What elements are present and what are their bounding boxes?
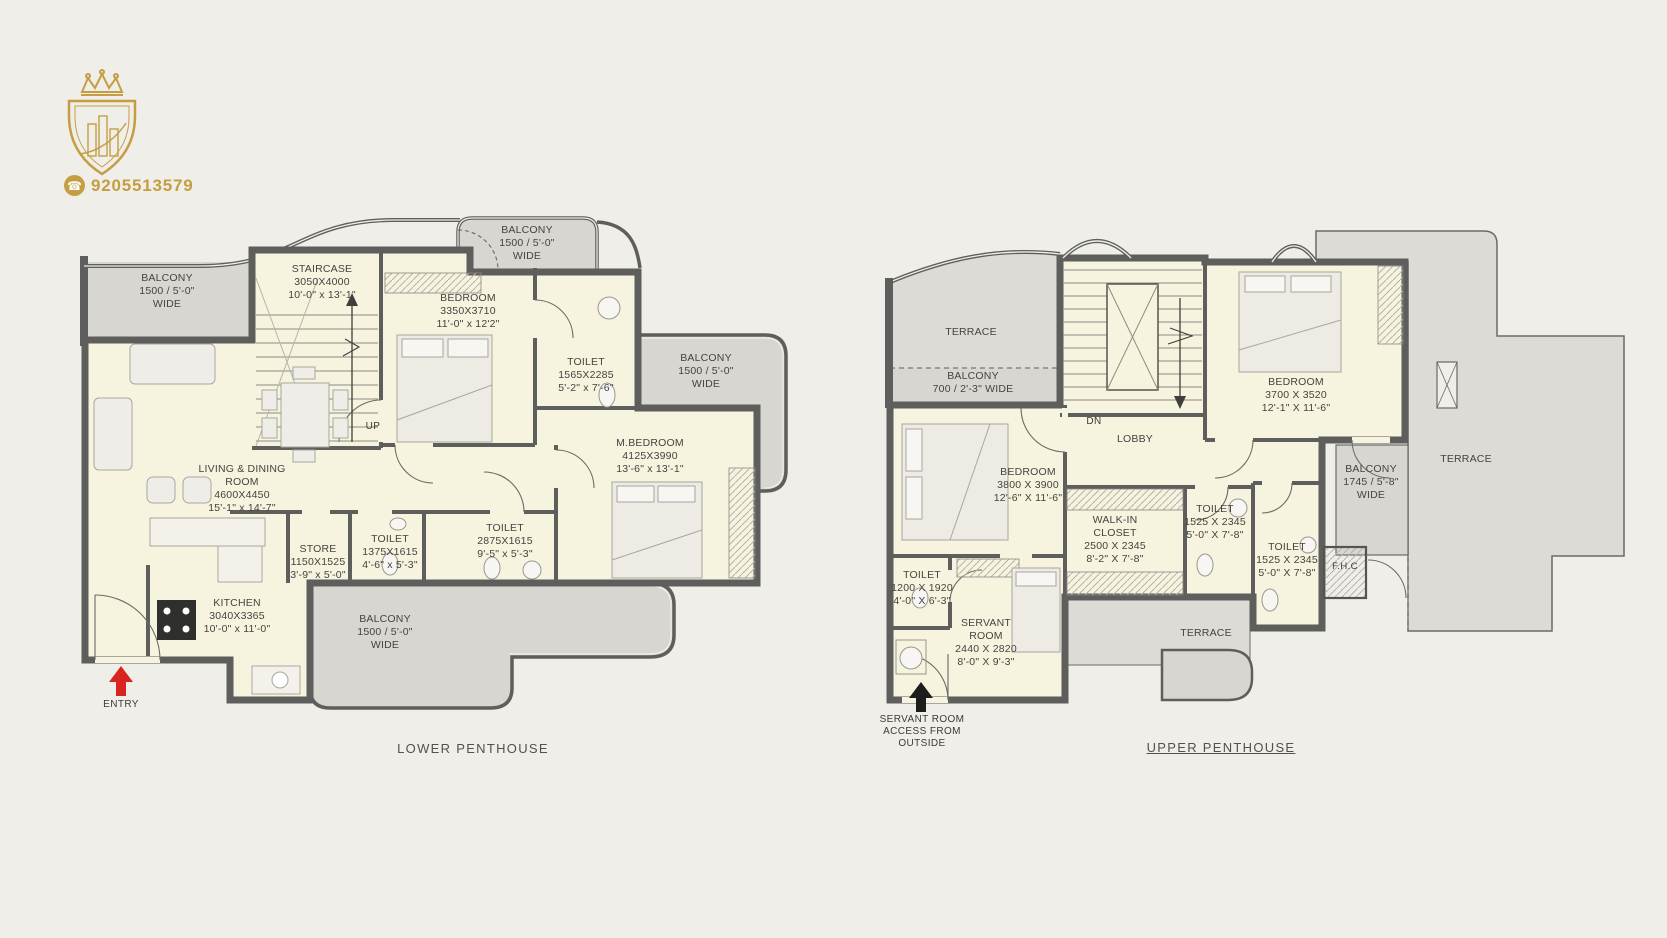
up-annotation: UP bbox=[366, 421, 381, 433]
room-line: 1525 X 2345 bbox=[1256, 554, 1318, 567]
room-label-upper-servant-room: SERVANT ROOM 2440 X 2820 8'-0" X 9'-3" bbox=[955, 617, 1017, 669]
room-line: 5'-2" x 7'-6" bbox=[558, 382, 614, 395]
room-line: 1375X1615 bbox=[362, 546, 418, 559]
phone-icon: ☎ bbox=[64, 175, 85, 196]
lower-penthouse-title: LOWER PENTHOUSE bbox=[397, 741, 549, 757]
room-label-upper-lobby: LOBBY bbox=[1117, 433, 1153, 446]
room-label-upper-toilet-3: TOILET 1200 X 1920 4'-0" X 6'-3" bbox=[891, 569, 953, 608]
room-line: 4600X4450 bbox=[198, 489, 285, 502]
room-line: WIDE bbox=[678, 378, 733, 391]
room-line: TOILET bbox=[558, 356, 614, 369]
phone-number: 9205513579 bbox=[91, 176, 194, 196]
room-line: 2440 X 2820 bbox=[955, 643, 1017, 656]
room-line: 1150X1525 bbox=[290, 556, 346, 569]
room-line: TOILET bbox=[1184, 503, 1246, 516]
room-line: STORE bbox=[290, 543, 346, 556]
room-line: BEDROOM bbox=[436, 292, 499, 305]
room-label-lower-balcony-bottom: BALCONY 1500 / 5'-0" WIDE bbox=[357, 613, 412, 652]
room-line: WIDE bbox=[139, 298, 194, 311]
room-line: 5'-0" X 7'-8" bbox=[1184, 529, 1246, 542]
room-label-lower-master-bedroom: M.BEDROOM 4125X3990 13'-6" x 13'-1" bbox=[616, 437, 684, 476]
room-line: 3050X4000 bbox=[288, 276, 356, 289]
room-line: BEDROOM bbox=[1262, 376, 1331, 389]
floorplan-sheet: ☎ 9205513579 BALCONY 1500 / 5'-0" WIDE S… bbox=[0, 0, 1667, 938]
room-label-upper-walk-in-closet: WALK-IN CLOSET 2500 X 2345 8'-2" X 7'-8" bbox=[1084, 514, 1146, 566]
room-line: TOILET bbox=[891, 569, 953, 582]
room-line: 4125X3990 bbox=[616, 450, 684, 463]
room-label-upper-toilet-2: TOILET 1525 X 2345 5'-0" X 7'-8" bbox=[1256, 541, 1318, 580]
room-line: 4'-6" x 5'-3" bbox=[362, 559, 418, 572]
room-line: 10'-0" x 11'-0" bbox=[204, 623, 271, 636]
room-label-upper-terrace-right: TERRACE bbox=[1440, 453, 1492, 466]
room-line: LOBBY bbox=[1117, 433, 1153, 446]
room-line: WALK-IN bbox=[1084, 514, 1146, 527]
note-line: OUTSIDE bbox=[880, 738, 965, 750]
room-line: 8'-2" X 7'-8" bbox=[1084, 553, 1146, 566]
room-line: TOILET bbox=[1256, 541, 1318, 554]
room-label-lower-living-dining: LIVING & DINING ROOM 4600X4450 15'-1" x … bbox=[198, 463, 285, 515]
note-line: ACCESS FROM bbox=[880, 726, 965, 738]
room-line: 1500 / 5'-0" bbox=[357, 626, 412, 639]
room-line: 700 / 2'-3" WIDE bbox=[933, 383, 1014, 396]
room-line: 3040X3365 bbox=[204, 610, 271, 623]
room-line: 8'-0" X 9'-3" bbox=[955, 656, 1017, 669]
phone-number-row: ☎ 9205513579 bbox=[64, 175, 194, 196]
room-line: BALCONY bbox=[139, 272, 194, 285]
room-label-lower-bedroom: BEDROOM 3350X3710 11'-0" x 12'2" bbox=[436, 292, 499, 331]
room-line: 3350X3710 bbox=[436, 305, 499, 318]
room-line: TOILET bbox=[477, 522, 533, 535]
room-line: TERRACE bbox=[945, 326, 997, 339]
room-line: 1565X2285 bbox=[558, 369, 614, 382]
room-line: M.BEDROOM bbox=[616, 437, 684, 450]
room-label-upper-balcony-right: BALCONY 1745 / 5'-8" WIDE bbox=[1343, 463, 1398, 502]
room-line: 1500 / 5'-0" bbox=[499, 237, 554, 250]
entry-annotation: ENTRY bbox=[103, 699, 139, 711]
room-label-upper-terrace-bottom: TERRACE bbox=[1180, 627, 1232, 640]
dn-annotation: DN bbox=[1086, 416, 1101, 428]
servant-access-note: SERVANT ROOM ACCESS FROM OUTSIDE bbox=[880, 714, 965, 750]
room-label-upper-toilet-1: TOILET 1525 X 2345 5'-0" X 7'-8" bbox=[1184, 503, 1246, 542]
room-line: ROOM bbox=[955, 630, 1017, 643]
room-line: 1745 / 5'-8" bbox=[1343, 476, 1398, 489]
room-line: 1525 X 2345 bbox=[1184, 516, 1246, 529]
room-line: TOILET bbox=[362, 533, 418, 546]
room-line: 5'-0" X 7'-8" bbox=[1256, 567, 1318, 580]
room-label-lower-toilet-2: TOILET 1375X1615 4'-6" x 5'-3" bbox=[362, 533, 418, 572]
room-line: 1500 / 5'-0" bbox=[139, 285, 194, 298]
room-line: 12'-6" X 11'-6" bbox=[994, 492, 1063, 505]
room-label-upper-bedroom-left: BEDROOM 3800 X 3900 12'-6" X 11'-6" bbox=[994, 466, 1063, 505]
room-line: BEDROOM bbox=[994, 466, 1063, 479]
room-line: 9'-5" x 5'-3" bbox=[477, 548, 533, 561]
room-label-upper-terrace-top-left: TERRACE bbox=[945, 326, 997, 339]
room-line: 1500 / 5'-0" bbox=[678, 365, 733, 378]
room-line: 2875X1615 bbox=[477, 535, 533, 548]
room-line: TERRACE bbox=[1440, 453, 1492, 466]
room-line: BALCONY bbox=[933, 370, 1014, 383]
room-label-lower-balcony-top-left: BALCONY 1500 / 5'-0" WIDE bbox=[139, 272, 194, 311]
room-line: 3'-9" x 5'-0" bbox=[290, 569, 346, 582]
room-line: STAIRCASE bbox=[288, 263, 356, 276]
room-line: 4'-0" X 6'-3" bbox=[891, 595, 953, 608]
room-line: CLOSET bbox=[1084, 527, 1146, 540]
room-line: WIDE bbox=[499, 250, 554, 263]
brand-logo bbox=[55, 68, 151, 180]
room-line: 11'-0" x 12'2" bbox=[436, 318, 499, 331]
room-line: 1200 X 1920 bbox=[891, 582, 953, 595]
upper-penthouse-title: UPPER PENTHOUSE bbox=[1147, 740, 1296, 756]
room-line: LIVING & DINING bbox=[198, 463, 285, 476]
room-line: KITCHEN bbox=[204, 597, 271, 610]
room-line: WIDE bbox=[357, 639, 412, 652]
note-line: SERVANT ROOM bbox=[880, 714, 965, 726]
room-line: 2500 X 2345 bbox=[1084, 540, 1146, 553]
room-line: WIDE bbox=[1343, 489, 1398, 502]
room-label-lower-balcony-top: BALCONY 1500 / 5'-0" WIDE bbox=[499, 224, 554, 263]
room-label-upper-bedroom-right: BEDROOM 3700 X 3520 12'-1" X 11'-6" bbox=[1262, 376, 1331, 415]
room-label-lower-store: STORE 1150X1525 3'-9" x 5'-0" bbox=[290, 543, 346, 582]
room-line: SERVANT bbox=[955, 617, 1017, 630]
room-line: 3800 X 3900 bbox=[994, 479, 1063, 492]
room-line: BALCONY bbox=[499, 224, 554, 237]
room-line: 10'-0" x 13'-1" bbox=[288, 289, 356, 302]
room-line: 13'-6" x 13'-1" bbox=[616, 463, 684, 476]
room-line: ROOM bbox=[198, 476, 285, 489]
room-line: 3700 X 3520 bbox=[1262, 389, 1331, 402]
room-label-lower-kitchen: KITCHEN 3040X3365 10'-0" x 11'-0" bbox=[204, 597, 271, 636]
room-line: TERRACE bbox=[1180, 627, 1232, 640]
room-line: BALCONY bbox=[357, 613, 412, 626]
room-label-lower-balcony-right: BALCONY 1500 / 5'-0" WIDE bbox=[678, 352, 733, 391]
room-label-upper-balcony-top: BALCONY 700 / 2'-3" WIDE bbox=[933, 370, 1014, 396]
room-line: BALCONY bbox=[678, 352, 733, 365]
room-line: 12'-1" X 11'-6" bbox=[1262, 402, 1331, 415]
room-label-lower-staircase: STAIRCASE 3050X4000 10'-0" x 13'-1" bbox=[288, 263, 356, 302]
room-line: 15'-1" x 14'-7" bbox=[198, 502, 285, 515]
room-label-lower-toilet-1: TOILET 1565X2285 5'-2" x 7'-6" bbox=[558, 356, 614, 395]
room-line: BALCONY bbox=[1343, 463, 1398, 476]
room-label-lower-toilet-3: TOILET 2875X1615 9'-5" x 5'-3" bbox=[477, 522, 533, 561]
fhc-annotation: F.H.C bbox=[1332, 561, 1358, 573]
